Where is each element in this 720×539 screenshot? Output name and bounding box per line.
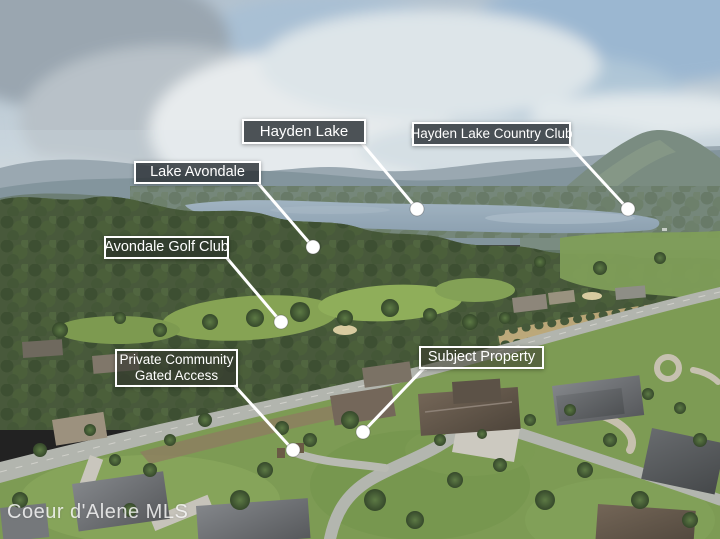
- callout-label-hayden-lake: Hayden Lake: [242, 119, 366, 144]
- callout-leader-lines: [0, 0, 720, 539]
- callout-label-avondale-golf-club: Avondale Golf Club: [104, 236, 229, 259]
- callout-label-private-community: Private Community Gated Access: [115, 349, 238, 387]
- callout-label-text: Subject Property: [428, 349, 535, 366]
- callout-endpoint-dot: [274, 315, 288, 329]
- callout-label-text: Avondale Golf Club: [104, 239, 229, 256]
- callout-label-text: Gated Access: [135, 368, 218, 384]
- callout-label-hayden-lake-country-club: Hayden Lake Country Club: [412, 122, 571, 146]
- leader-lines: [226, 141, 628, 450]
- callout-label-text: Lake Avondale: [150, 164, 245, 181]
- aerial-photo: Hayden Lake Hayden Lake Country Club Lak…: [0, 0, 720, 539]
- callout-endpoint-dot: [306, 240, 320, 254]
- callout-label-text: Private Community: [119, 352, 233, 368]
- callout-label-subject-property: Subject Property: [419, 346, 544, 369]
- watermark-mls: Coeur d'Alene MLS: [7, 501, 188, 524]
- callout-label-lake-avondale: Lake Avondale: [134, 161, 261, 184]
- callout-endpoint-dot: [356, 425, 370, 439]
- callout-endpoint-dot: [286, 443, 300, 457]
- callout-label-text: Hayden Lake Country Club: [410, 126, 572, 142]
- callout-endpoint-dot: [410, 202, 424, 216]
- callout-label-text: Hayden Lake: [260, 123, 348, 141]
- callout-endpoint-dot: [621, 202, 635, 216]
